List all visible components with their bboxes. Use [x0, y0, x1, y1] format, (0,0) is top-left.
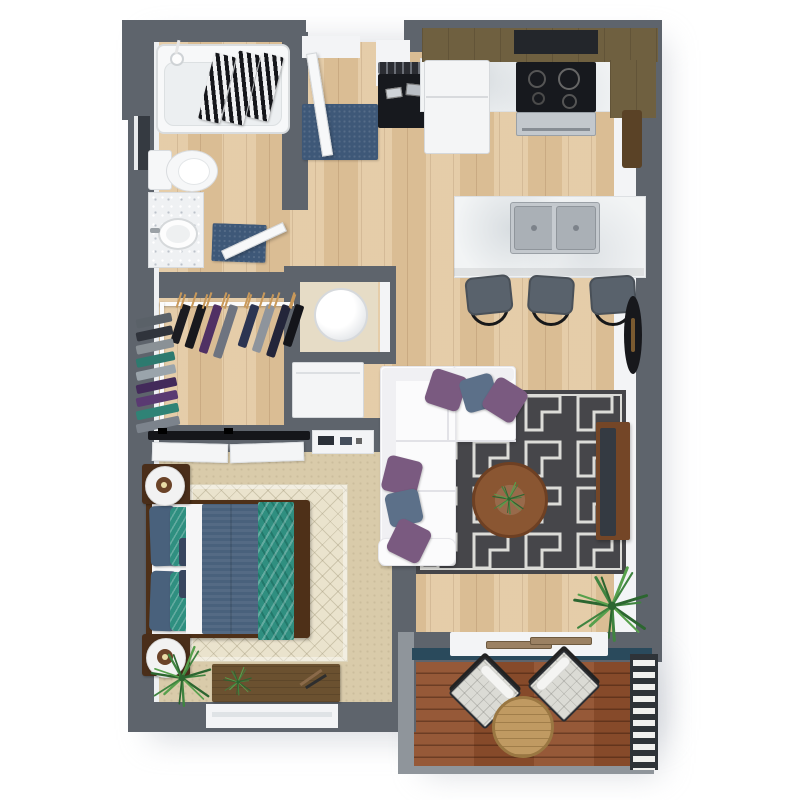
leaf — [578, 606, 612, 628]
rail-roller — [158, 428, 167, 434]
sink-drain — [531, 225, 537, 231]
entry-mat — [302, 104, 378, 160]
window-pane — [212, 712, 332, 717]
plant-leaves — [222, 666, 254, 698]
wall-decor-shelf — [622, 110, 642, 168]
balcony-bottom-edge — [398, 766, 654, 774]
mirror-edge — [134, 116, 138, 170]
sofa-seam — [396, 440, 516, 442]
leaf — [238, 682, 248, 692]
leaf — [509, 499, 520, 510]
sink-drain — [573, 225, 579, 231]
rail-roller — [224, 428, 233, 434]
leaf — [508, 499, 509, 513]
oval-decor-center — [631, 318, 635, 352]
media-device — [356, 438, 362, 444]
leaf — [182, 678, 203, 699]
tv — [600, 428, 616, 536]
media-device — [340, 437, 352, 445]
media-device — [318, 436, 334, 445]
lamp-bulb — [161, 482, 167, 488]
burner — [532, 92, 545, 105]
bar-stool — [464, 274, 514, 317]
bed-throw — [258, 502, 294, 640]
leaf — [237, 682, 238, 694]
hanger — [259, 292, 266, 308]
plant-leaves — [148, 644, 216, 712]
faucet — [150, 228, 160, 233]
heater-closet-door — [380, 282, 390, 352]
closet-left-garments — [136, 316, 206, 431]
burner — [562, 94, 577, 109]
plant-center — [179, 675, 186, 682]
washer-lid-line — [296, 372, 360, 374]
washer-dryer — [292, 362, 364, 418]
coffee-table-plant — [491, 481, 529, 519]
hanger — [274, 292, 281, 308]
leaf — [225, 682, 238, 690]
leaf — [609, 606, 612, 638]
closet-door-panel — [230, 442, 305, 464]
leaf — [179, 678, 182, 704]
bar-stool — [527, 274, 576, 315]
duvet-crease — [230, 504, 232, 634]
plant-center — [507, 497, 511, 501]
burner — [528, 70, 546, 88]
floor-plan — [0, 0, 800, 800]
sink-bowl — [166, 225, 190, 243]
plant-center — [608, 602, 616, 610]
plant-leaves — [491, 481, 527, 517]
leaf — [155, 678, 182, 696]
water-heater — [314, 288, 368, 342]
cooktop — [516, 62, 596, 112]
leaf — [612, 606, 638, 632]
sink-divider — [552, 206, 556, 250]
balcony-table — [492, 696, 554, 758]
leaf — [494, 499, 509, 508]
oven-front — [516, 112, 596, 136]
burner — [558, 68, 580, 90]
toilet-seat — [178, 158, 210, 185]
plant-center — [236, 680, 239, 683]
balcony-railing — [630, 654, 658, 770]
bed-sheet-fold — [186, 504, 202, 634]
desk-plant — [222, 666, 256, 700]
closet-door-panel — [152, 442, 228, 463]
refrigerator — [424, 60, 490, 154]
oven-handle — [522, 128, 590, 131]
range-hood — [514, 30, 598, 54]
fridge-split — [426, 96, 488, 98]
sliding-door-glass — [530, 637, 592, 645]
